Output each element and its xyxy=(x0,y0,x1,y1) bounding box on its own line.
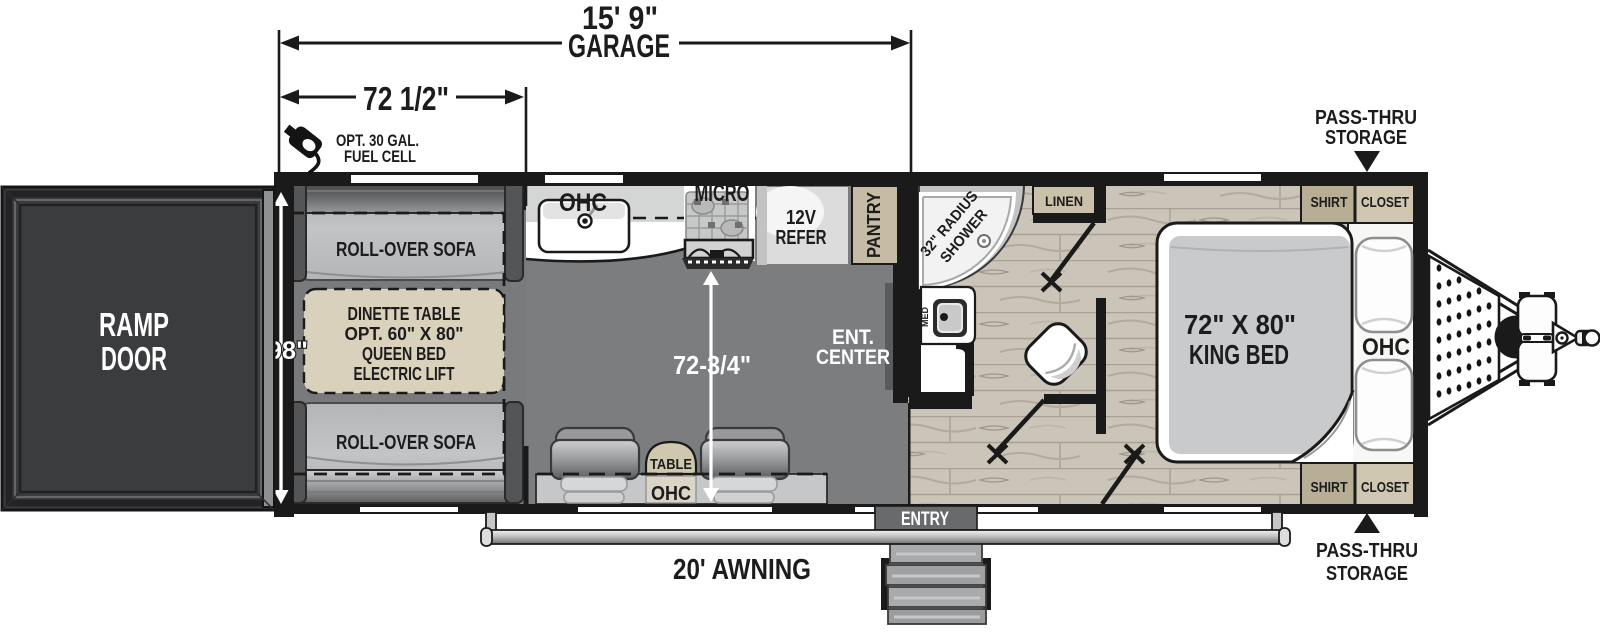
svg-text:12V: 12V xyxy=(786,207,817,229)
svg-text:ELECTRIC LIFT: ELECTRIC LIFT xyxy=(354,364,455,384)
svg-text:20' AWNING: 20' AWNING xyxy=(673,554,811,586)
svg-text:CENTER: CENTER xyxy=(816,346,890,369)
svg-text:DOOR: DOOR xyxy=(101,340,167,377)
svg-text:CLOSET: CLOSET xyxy=(1361,479,1409,496)
svg-text:CLOSET: CLOSET xyxy=(1361,194,1409,211)
svg-text:MED: MED xyxy=(920,307,930,328)
svg-text:ROLL-OVER SOFA: ROLL-OVER SOFA xyxy=(336,239,476,261)
svg-text:REFER: REFER xyxy=(776,227,827,249)
svg-text:LINEN: LINEN xyxy=(1045,193,1083,209)
svg-text:STORAGE: STORAGE xyxy=(1325,127,1407,149)
svg-text:FUEL CELL: FUEL CELL xyxy=(344,147,416,166)
svg-text:ROLL-OVER SOFA: ROLL-OVER SOFA xyxy=(336,432,476,454)
svg-text:SHIRT: SHIRT xyxy=(1311,479,1348,496)
svg-text:OPT. 60" X 80": OPT. 60" X 80" xyxy=(345,324,464,344)
svg-text:72 1/2": 72 1/2" xyxy=(363,80,449,117)
svg-text:DINETTE TABLE: DINETTE TABLE xyxy=(348,304,461,324)
svg-text:PASS-THRU: PASS-THRU xyxy=(1316,540,1418,562)
svg-text:PASS-THRU: PASS-THRU xyxy=(1315,107,1417,129)
svg-text:OHC: OHC xyxy=(1362,334,1410,361)
svg-text:PANTRY: PANTRY xyxy=(864,192,884,258)
svg-text:QUEEN BED: QUEEN BED xyxy=(362,344,446,364)
svg-text:STORAGE: STORAGE xyxy=(1326,563,1408,585)
svg-text:SHIRT: SHIRT xyxy=(1311,194,1348,211)
svg-text:OHC: OHC xyxy=(559,189,607,217)
svg-text:RAMP: RAMP xyxy=(99,306,169,343)
svg-text:TABLE: TABLE xyxy=(650,456,692,473)
svg-text:ENTRY: ENTRY xyxy=(901,509,949,530)
svg-text:KING BED: KING BED xyxy=(1189,339,1289,370)
svg-text:OHC: OHC xyxy=(651,483,691,505)
svg-text:72-3/4": 72-3/4" xyxy=(673,350,751,380)
svg-text:GARAGE: GARAGE xyxy=(568,28,670,64)
svg-text:72" X 80": 72" X 80" xyxy=(1184,309,1296,340)
